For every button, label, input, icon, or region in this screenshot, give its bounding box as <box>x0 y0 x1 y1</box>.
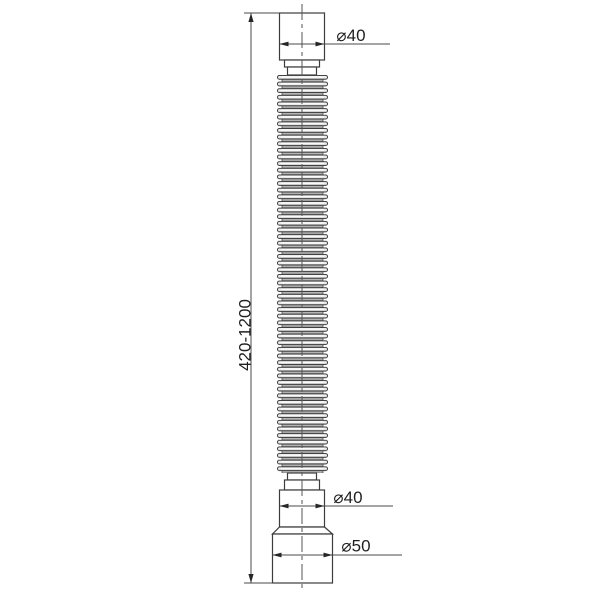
flexible-pipe-technical-drawing: 420-1200 ⌀40 ⌀40 ⌀50 <box>0 0 600 600</box>
corrugation-ribs <box>277 75 328 473</box>
corrugated-hose <box>277 75 328 473</box>
label-outlet-diameter: ⌀50 <box>341 537 370 556</box>
arrow-down-icon <box>248 574 253 583</box>
drawing-canvas: 420-1200 ⌀40 ⌀40 ⌀50 <box>0 0 600 600</box>
arrow-up-icon <box>248 13 253 22</box>
label-bottom-diameter: ⌀40 <box>333 488 362 507</box>
label-top-diameter: ⌀40 <box>336 26 365 45</box>
label-length-range: 420-1200 <box>236 299 255 371</box>
dimension-length: 420-1200 <box>236 13 280 583</box>
